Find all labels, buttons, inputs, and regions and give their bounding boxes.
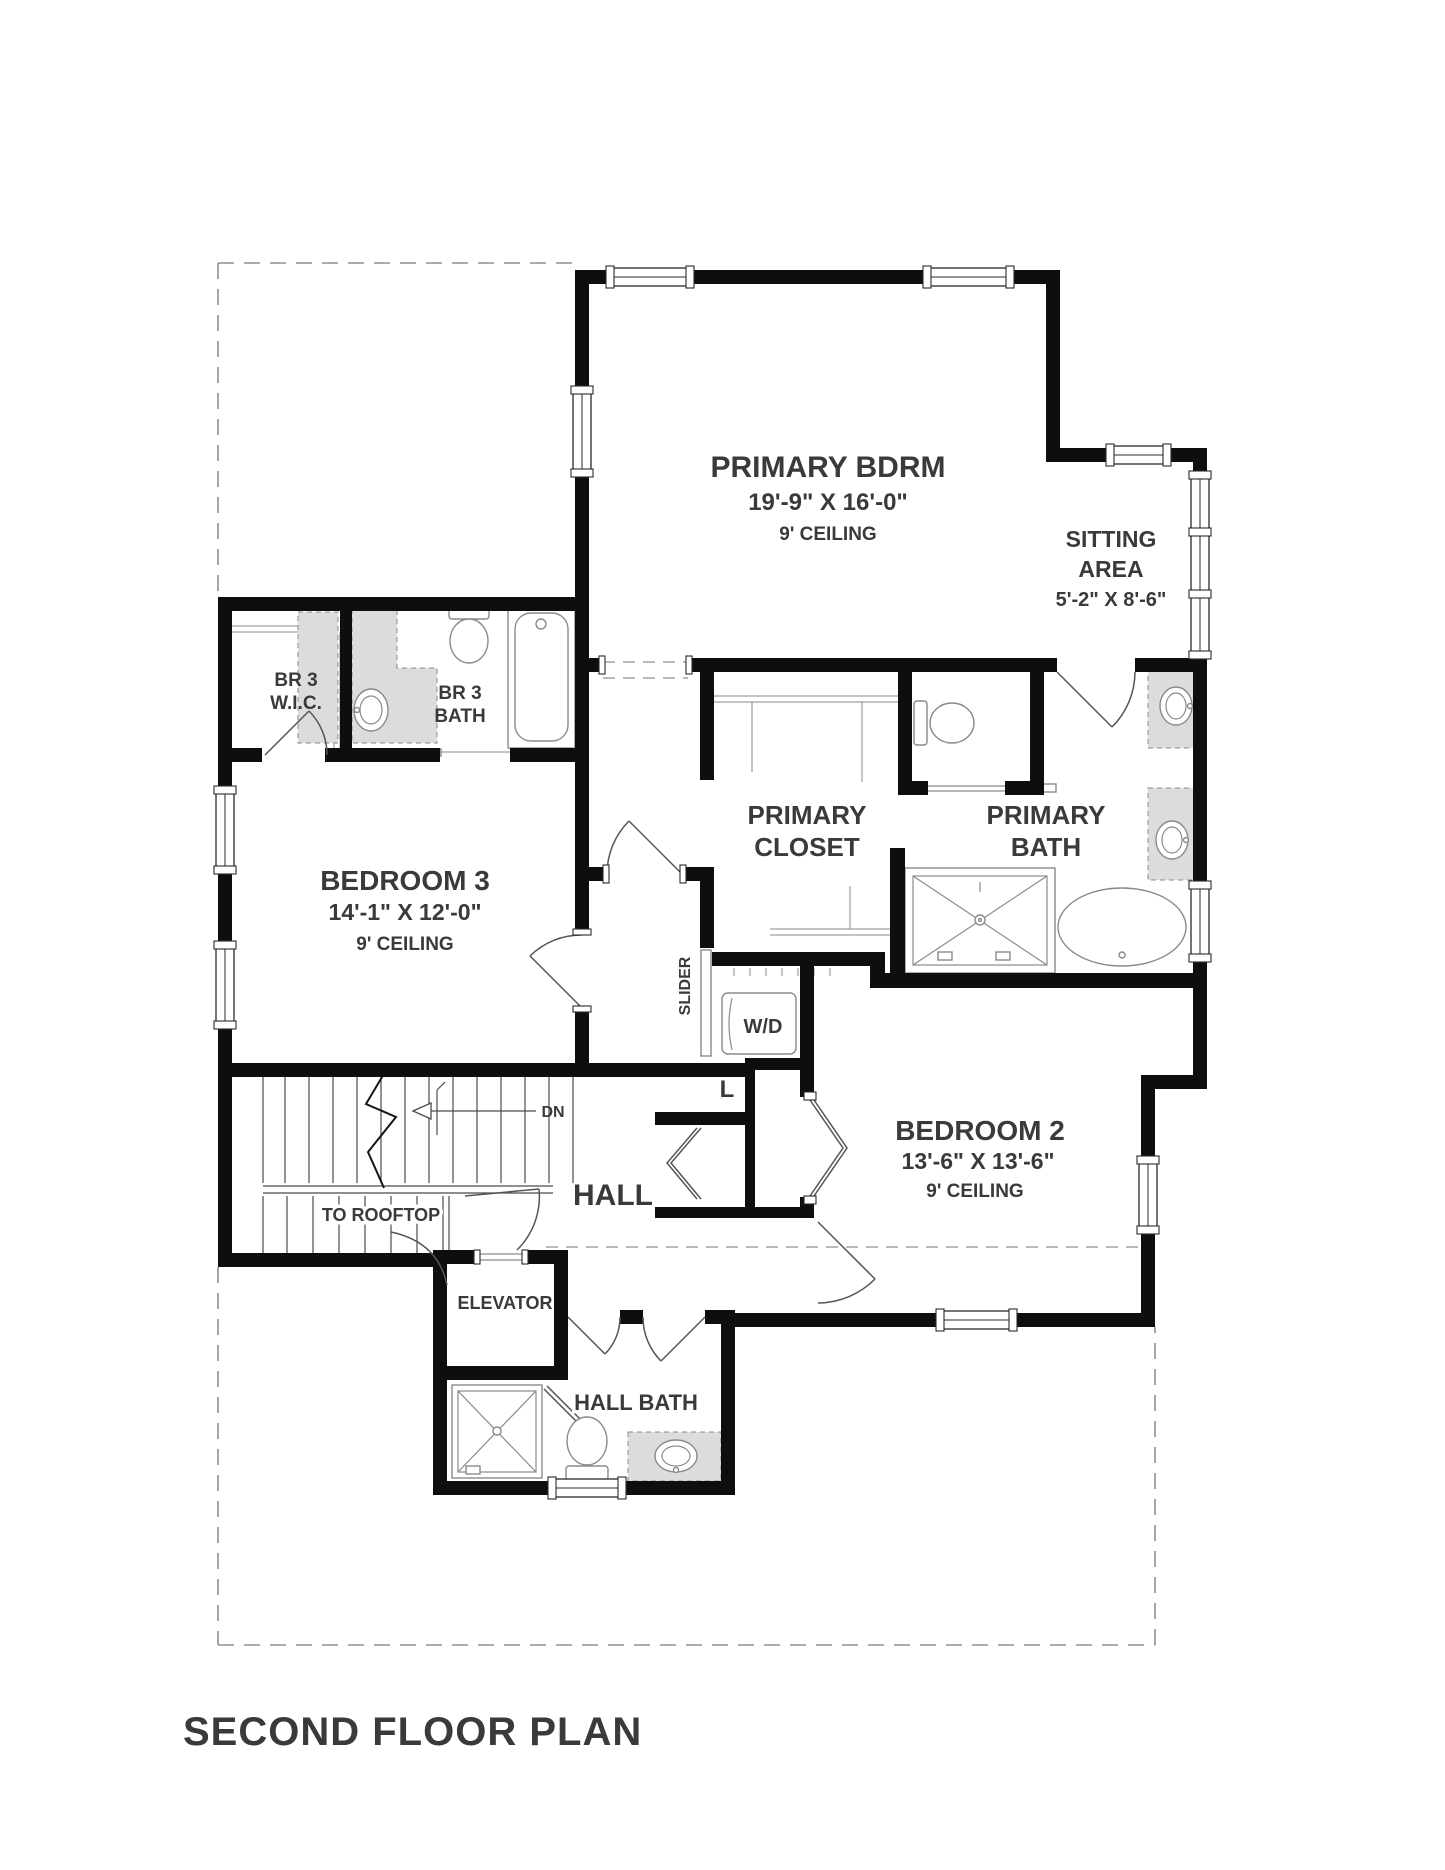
window: [1189, 881, 1211, 962]
window: [1106, 444, 1171, 466]
label-sitting-area-dims: 5'-2" X 8'-6": [1056, 589, 1167, 611]
label-bedroom3: BEDROOM 3: [320, 865, 490, 896]
window: [606, 266, 694, 288]
label-bedroom3-ceiling: 9' CEILING: [356, 934, 453, 955]
door-bedroom2-vestibule: [643, 1317, 705, 1361]
label-sitting-area-2: AREA: [1078, 556, 1143, 582]
bifold-linen-closet: [667, 1128, 701, 1199]
window: [548, 1477, 626, 1499]
label-linen: L: [720, 1076, 735, 1103]
slider-door-panel: [701, 950, 711, 1056]
label-hall-bath: HALL BATH: [574, 1390, 698, 1415]
label-primary-closet-1: PRIMARY: [748, 800, 867, 830]
door-hall-bath: [568, 1317, 620, 1354]
door-bedroom3: [530, 929, 591, 1012]
label-slider: SLIDER: [677, 956, 694, 1015]
label-primary-closet-2: CLOSET: [754, 832, 860, 862]
label-primary-bdrm-ceiling: 9' CEILING: [779, 524, 876, 545]
wc-toilet-bowl: [930, 703, 974, 743]
label-primary-bdrm: PRIMARY BDRM: [710, 451, 945, 484]
elevator-door: [474, 1250, 528, 1264]
label-br3-bath-2: BATH: [434, 706, 485, 727]
door-primary-vestibule: [603, 821, 686, 883]
label-bedroom2: BEDROOM 2: [895, 1115, 1065, 1146]
floor-plan-drawing: PRIMARY BDRM 19'-9" X 16'-0" 9' CEILING …: [0, 0, 1445, 1870]
floor-plan-page: PRIMARY BDRM 19'-9" X 16'-0" 9' CEILING …: [0, 0, 1445, 1870]
window: [923, 266, 1014, 288]
label-primary-bath-2: BATH: [1011, 832, 1081, 862]
page-title: SECOND FLOOR PLAN: [183, 1710, 642, 1754]
label-bedroom2-ceiling: 9' CEILING: [926, 1181, 1023, 1202]
hall-bath-toilet-tank: [566, 1466, 608, 1480]
door-bedroom2: [818, 1222, 875, 1303]
br3-toilet-bowl: [450, 619, 488, 663]
label-washer-dryer: W/D: [744, 1016, 783, 1038]
window: [214, 941, 236, 1029]
label-br3-wic-2: W.I.C.: [270, 693, 322, 714]
label-bedroom2-dims: 13'-6" X 13'-6": [902, 1148, 1055, 1174]
label-down: DN: [541, 1104, 564, 1121]
window-bay: [1189, 471, 1211, 659]
label-sitting-area-1: SITTING: [1066, 526, 1157, 552]
cased-opening-primary-bdrm: [599, 656, 692, 678]
stairs: [263, 1072, 573, 1253]
label-hall: HALL: [573, 1179, 653, 1212]
window: [936, 1309, 1017, 1331]
label-elevator: ELEVATOR: [457, 1293, 552, 1313]
stair-down-arrowhead: [413, 1103, 431, 1119]
label-primary-bath-1: PRIMARY: [987, 800, 1106, 830]
hall-bath-toilet-bowl: [567, 1417, 607, 1465]
window: [571, 386, 593, 477]
label-bedroom3-dims: 14'-1" X 12'-0": [329, 899, 482, 925]
label-primary-bdrm-dims: 19'-9" X 16'-0": [748, 489, 908, 516]
label-br3-bath-1: BR 3: [438, 683, 481, 704]
window: [214, 786, 236, 874]
label-to-rooftop: TO ROOFTOP: [322, 1205, 440, 1225]
br3-tub-faucet: [536, 619, 546, 629]
window: [1137, 1156, 1159, 1234]
door-hall-stair: [465, 1189, 539, 1250]
wc-toilet-tank: [914, 701, 927, 745]
door-primary-bath: [1057, 672, 1135, 727]
bifold-bedroom2-closet: [804, 1092, 847, 1204]
label-br3-wic-1: BR 3: [274, 670, 317, 691]
